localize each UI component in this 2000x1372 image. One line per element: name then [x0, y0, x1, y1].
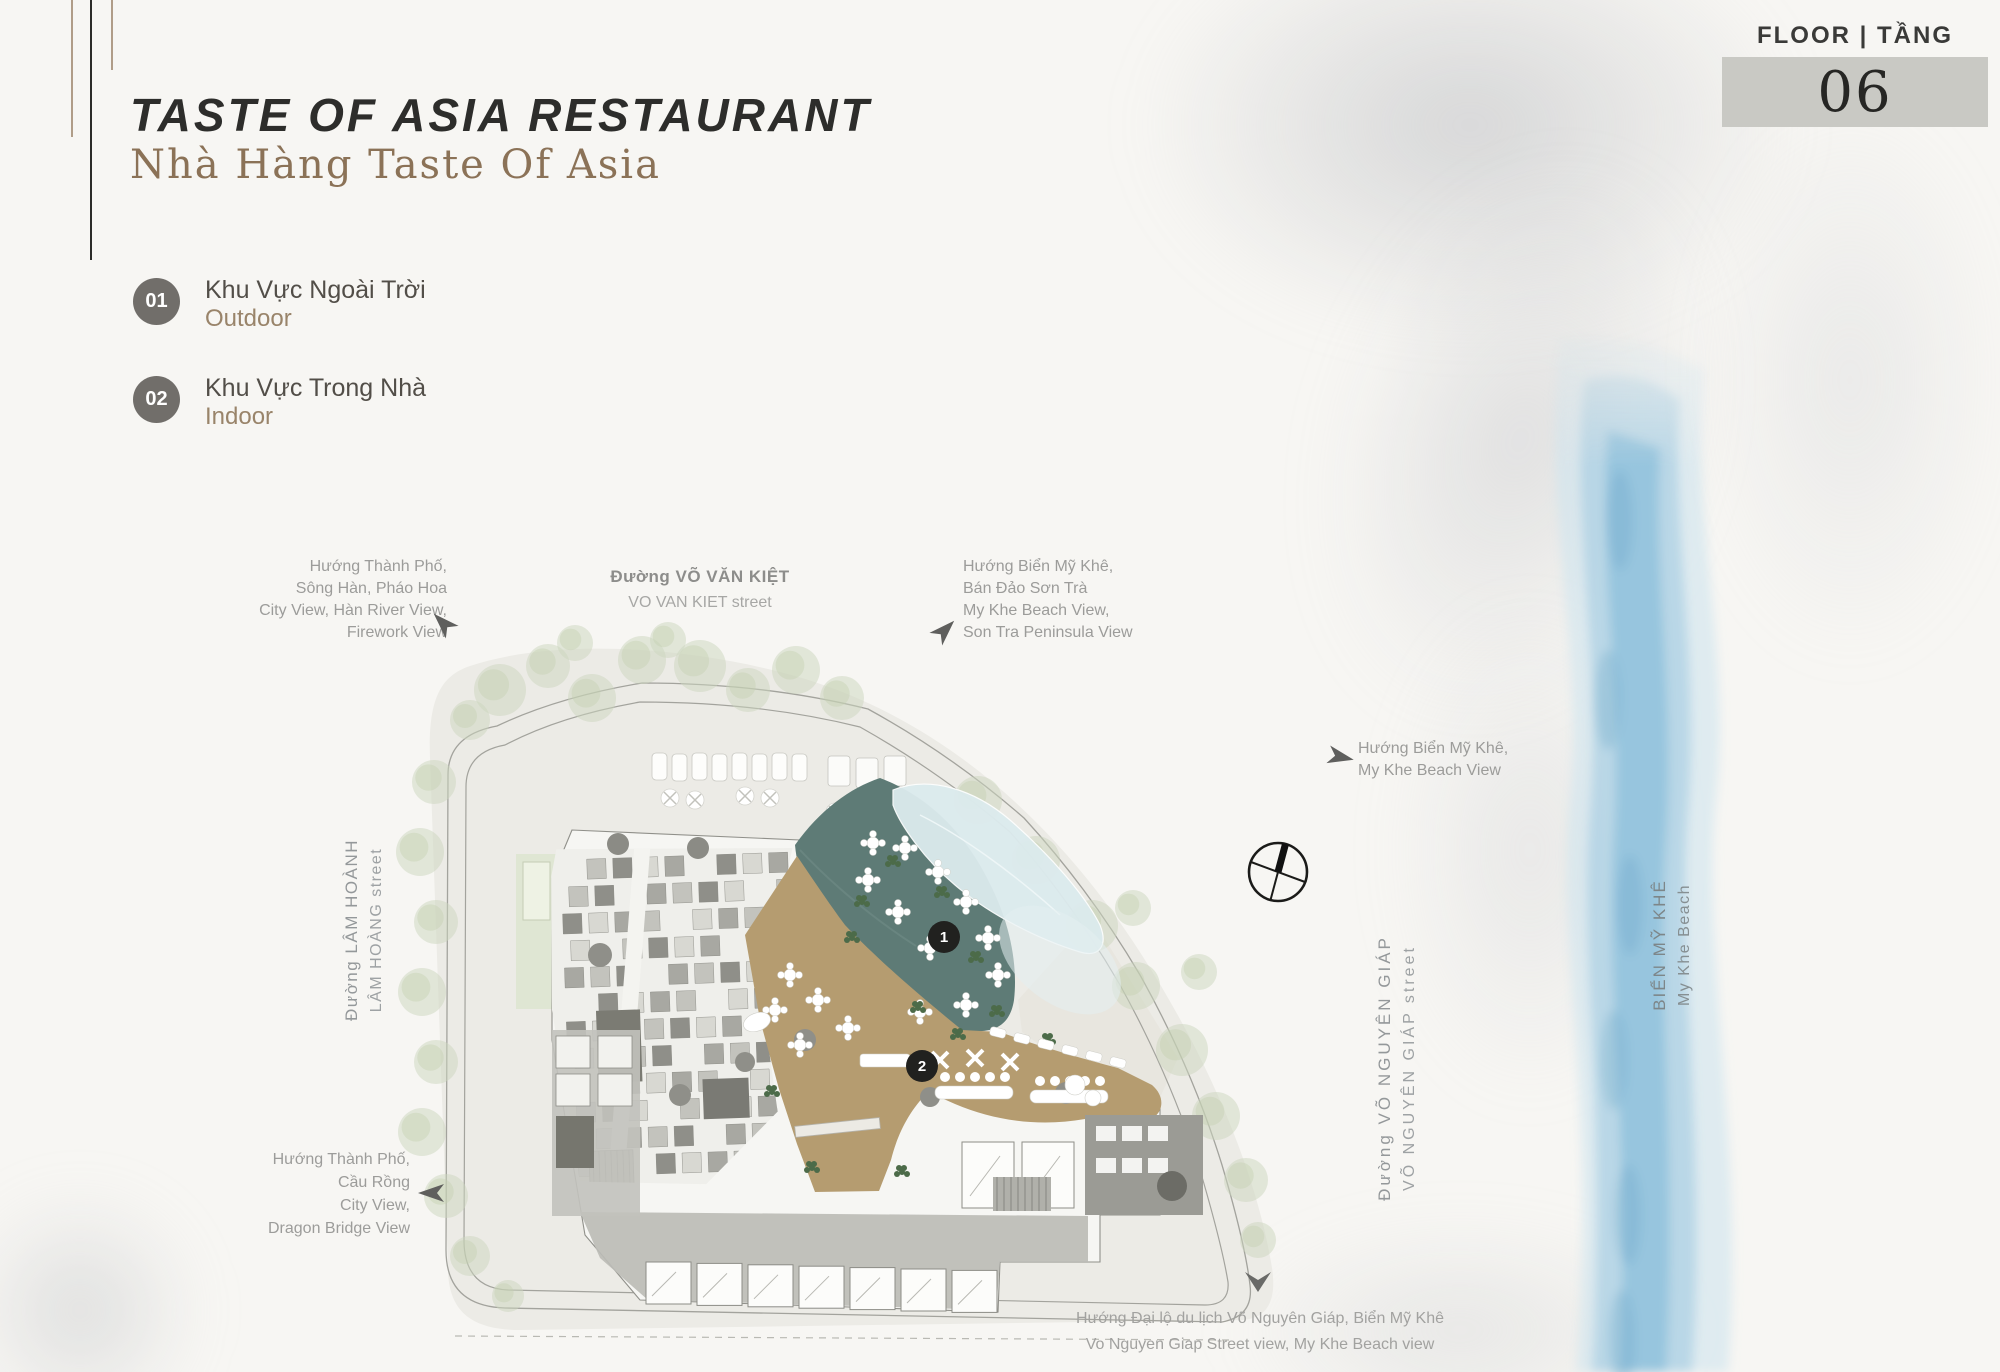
floor-plan: [340, 600, 1340, 1360]
floor-label: FLOOR | TẦNG: [1722, 22, 1988, 50]
legend-number-badge: 01: [133, 278, 180, 325]
plan-marker-1: 1: [928, 921, 960, 953]
decorative-line: [90, 0, 92, 260]
legend-label-vi: Khu Vực Ngoài Trời: [205, 276, 426, 305]
decorative-line: [111, 0, 113, 70]
page-subtitle: Nhà Hàng Taste Of Asia: [130, 142, 661, 188]
page-title: TASTE OF ASIA RESTAURANT: [130, 88, 872, 142]
view-label-city-bottom: Hướng Thành Phố, Cầu Rồng City View, Dra…: [150, 1148, 410, 1240]
legend-label-en: Indoor: [205, 403, 273, 431]
view-label-my-khe-right: Hướng Biển Mỹ Khê, My Khe Beach View: [1358, 738, 1598, 782]
legend-label-en: Outdoor: [205, 305, 292, 333]
legend-label-vi: Khu Vực Trong Nhà: [205, 374, 426, 403]
floor-number: 06: [1817, 60, 1892, 125]
compass-icon: [1243, 837, 1313, 907]
view-label-city-top: Hướng Thành Phố, Sông Hàn, Pháo Hoa City…: [187, 556, 447, 644]
sea-watercolor-band: [1480, 0, 1820, 1372]
legend-item-outdoor: 01 Khu Vực Ngoài Trời Outdoor: [133, 276, 653, 328]
plan-marker-2: 2: [906, 1050, 938, 1082]
street-label-vo-nguyen-giap: Đường VÕ NGUYÊN GIÁP VÕ NGUYÊN GIÁP stre…: [1372, 935, 1422, 1201]
view-arrow-west-icon: [416, 1178, 446, 1208]
street-label-lam-hoanh: Đường LÂM HOÀNH LÂM HOÀNG street: [339, 839, 389, 1021]
decorative-line: [71, 0, 73, 137]
beach-label-bien-my-khe: BIỂN MỸ KHÊ My Khe Beach: [1647, 879, 1697, 1011]
view-arrow-east-icon: [1323, 739, 1359, 775]
view-label-bottom: Hướng Đại lộ du lịch Võ Nguyên Giáp, Biể…: [980, 1306, 1540, 1358]
floor-number-box: 06: [1722, 57, 1988, 127]
street-label-vo-van-kiet: Đường VÕ VĂN KIỆT VO VAN KIET street: [530, 566, 870, 614]
brochure-page: TASTE OF ASIA RESTAURANT Nhà Hàng Taste …: [0, 0, 2000, 1372]
legend-item-indoor: 02 Khu Vực Trong Nhà Indoor: [133, 374, 653, 426]
legend-number-badge: 02: [133, 376, 180, 423]
view-arrow-down-icon: [1243, 1268, 1273, 1298]
view-label-my-khe-top: Hướng Biển Mỹ Khê, Bán Đảo Sơn Trà My Kh…: [963, 556, 1243, 644]
